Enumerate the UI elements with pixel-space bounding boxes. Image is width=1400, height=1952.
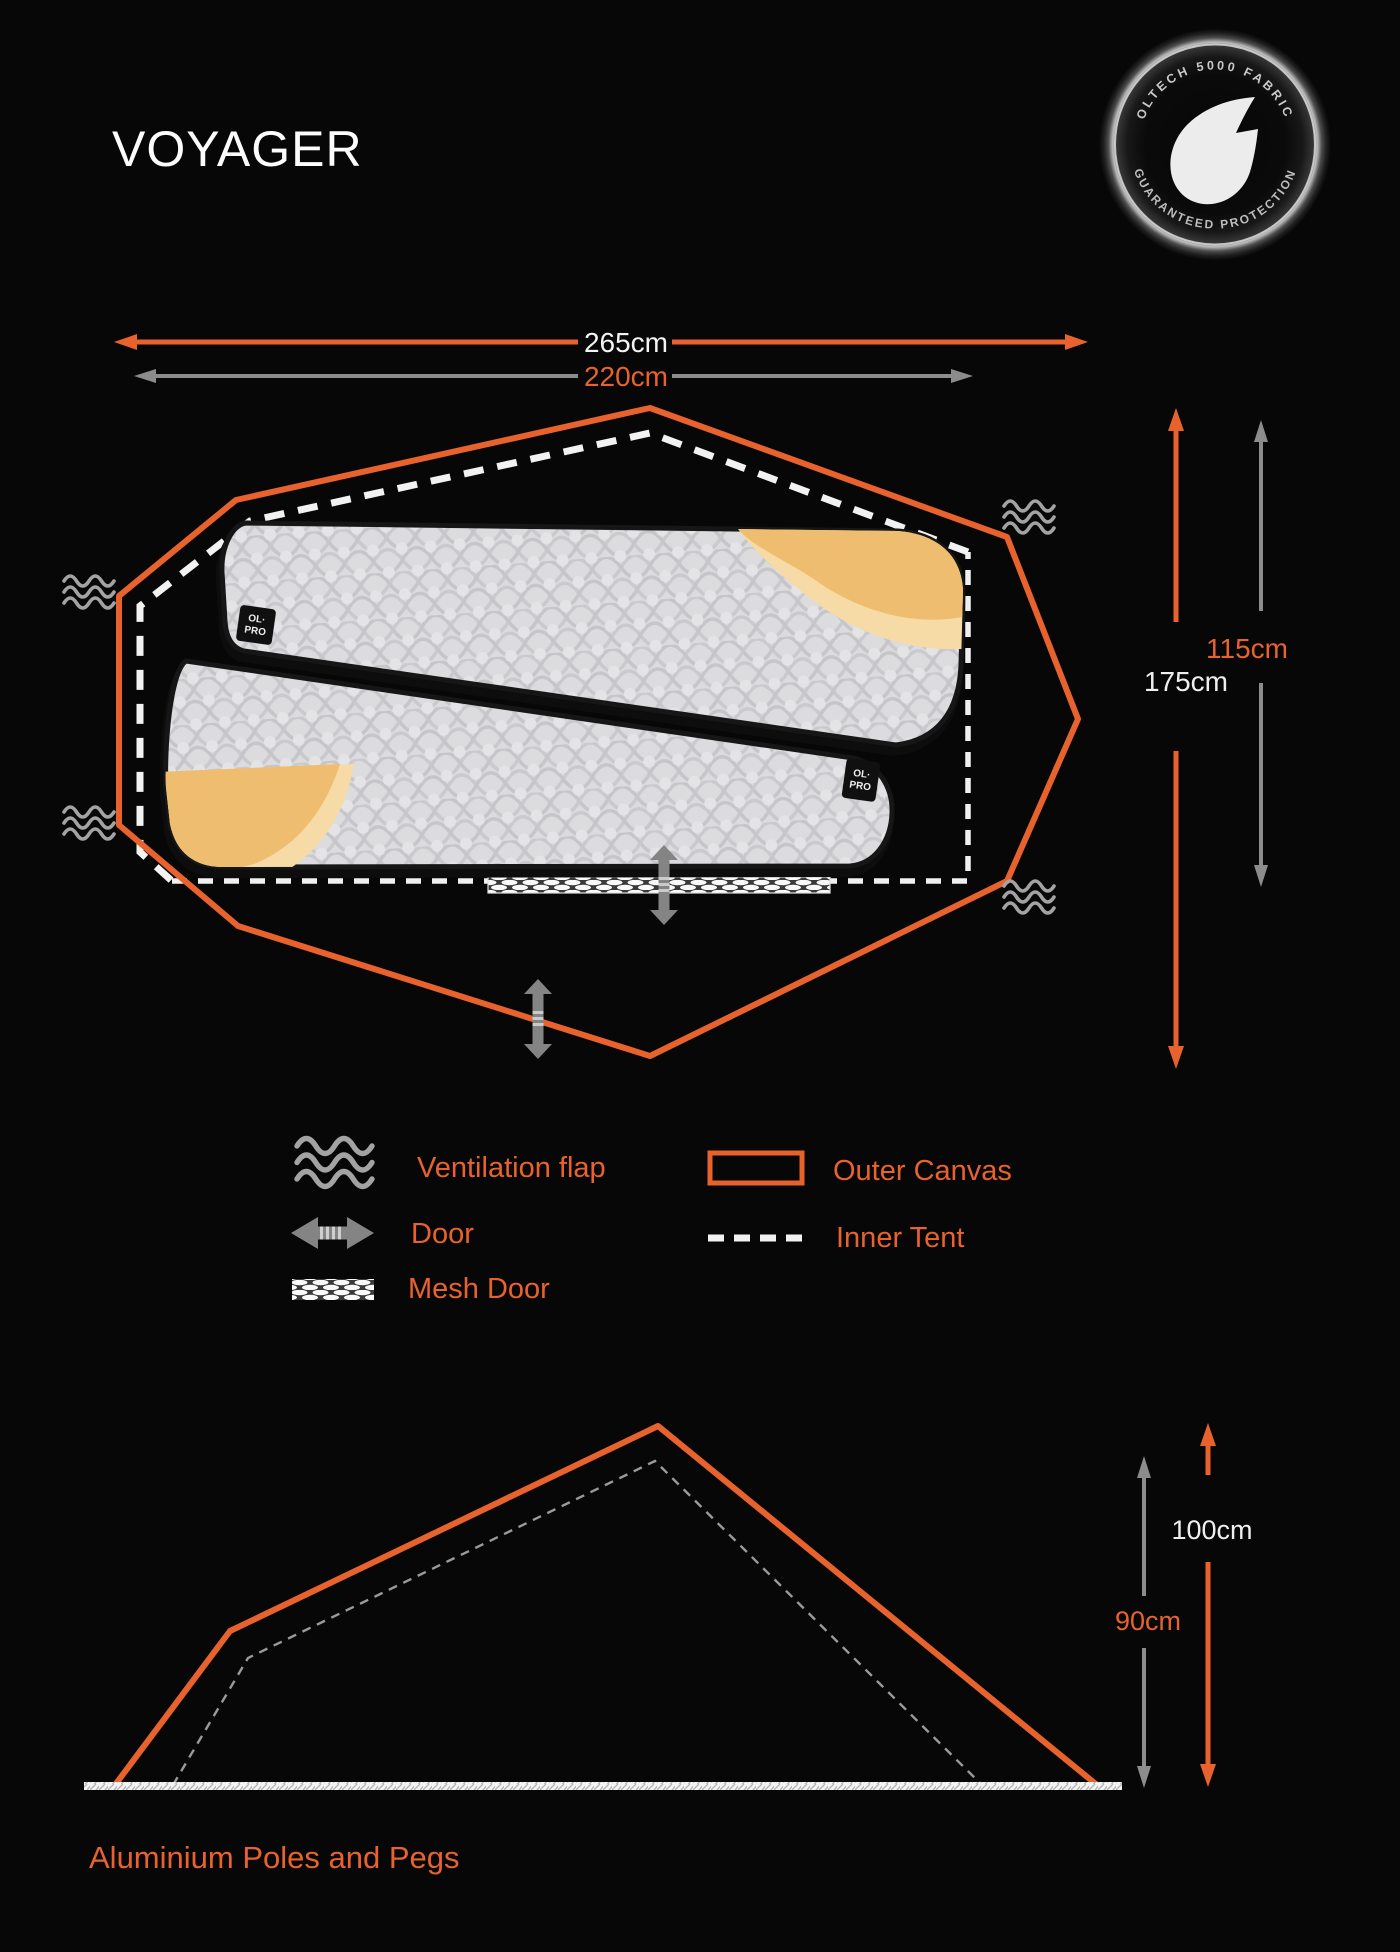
svg-text:Mesh Door: Mesh Door [408, 1273, 550, 1305]
svg-text:Inner Tent: Inner Tent [836, 1222, 964, 1254]
svg-text:Ventilation flap: Ventilation flap [417, 1152, 606, 1184]
svg-text:115cm: 115cm [1206, 633, 1288, 664]
svg-text:220cm: 220cm [584, 361, 668, 392]
svg-text:Door: Door [411, 1218, 474, 1250]
svg-text:VOYAGER: VOYAGER [112, 121, 363, 177]
svg-text:90cm: 90cm [1115, 1606, 1181, 1636]
svg-text:Aluminium Poles and Pegs: Aluminium Poles and Pegs [89, 1840, 459, 1875]
svg-text:100cm: 100cm [1171, 1515, 1252, 1545]
svg-text:265cm: 265cm [584, 327, 668, 358]
svg-text:Outer Canvas: Outer Canvas [833, 1155, 1012, 1187]
svg-text:175cm: 175cm [1144, 666, 1228, 697]
